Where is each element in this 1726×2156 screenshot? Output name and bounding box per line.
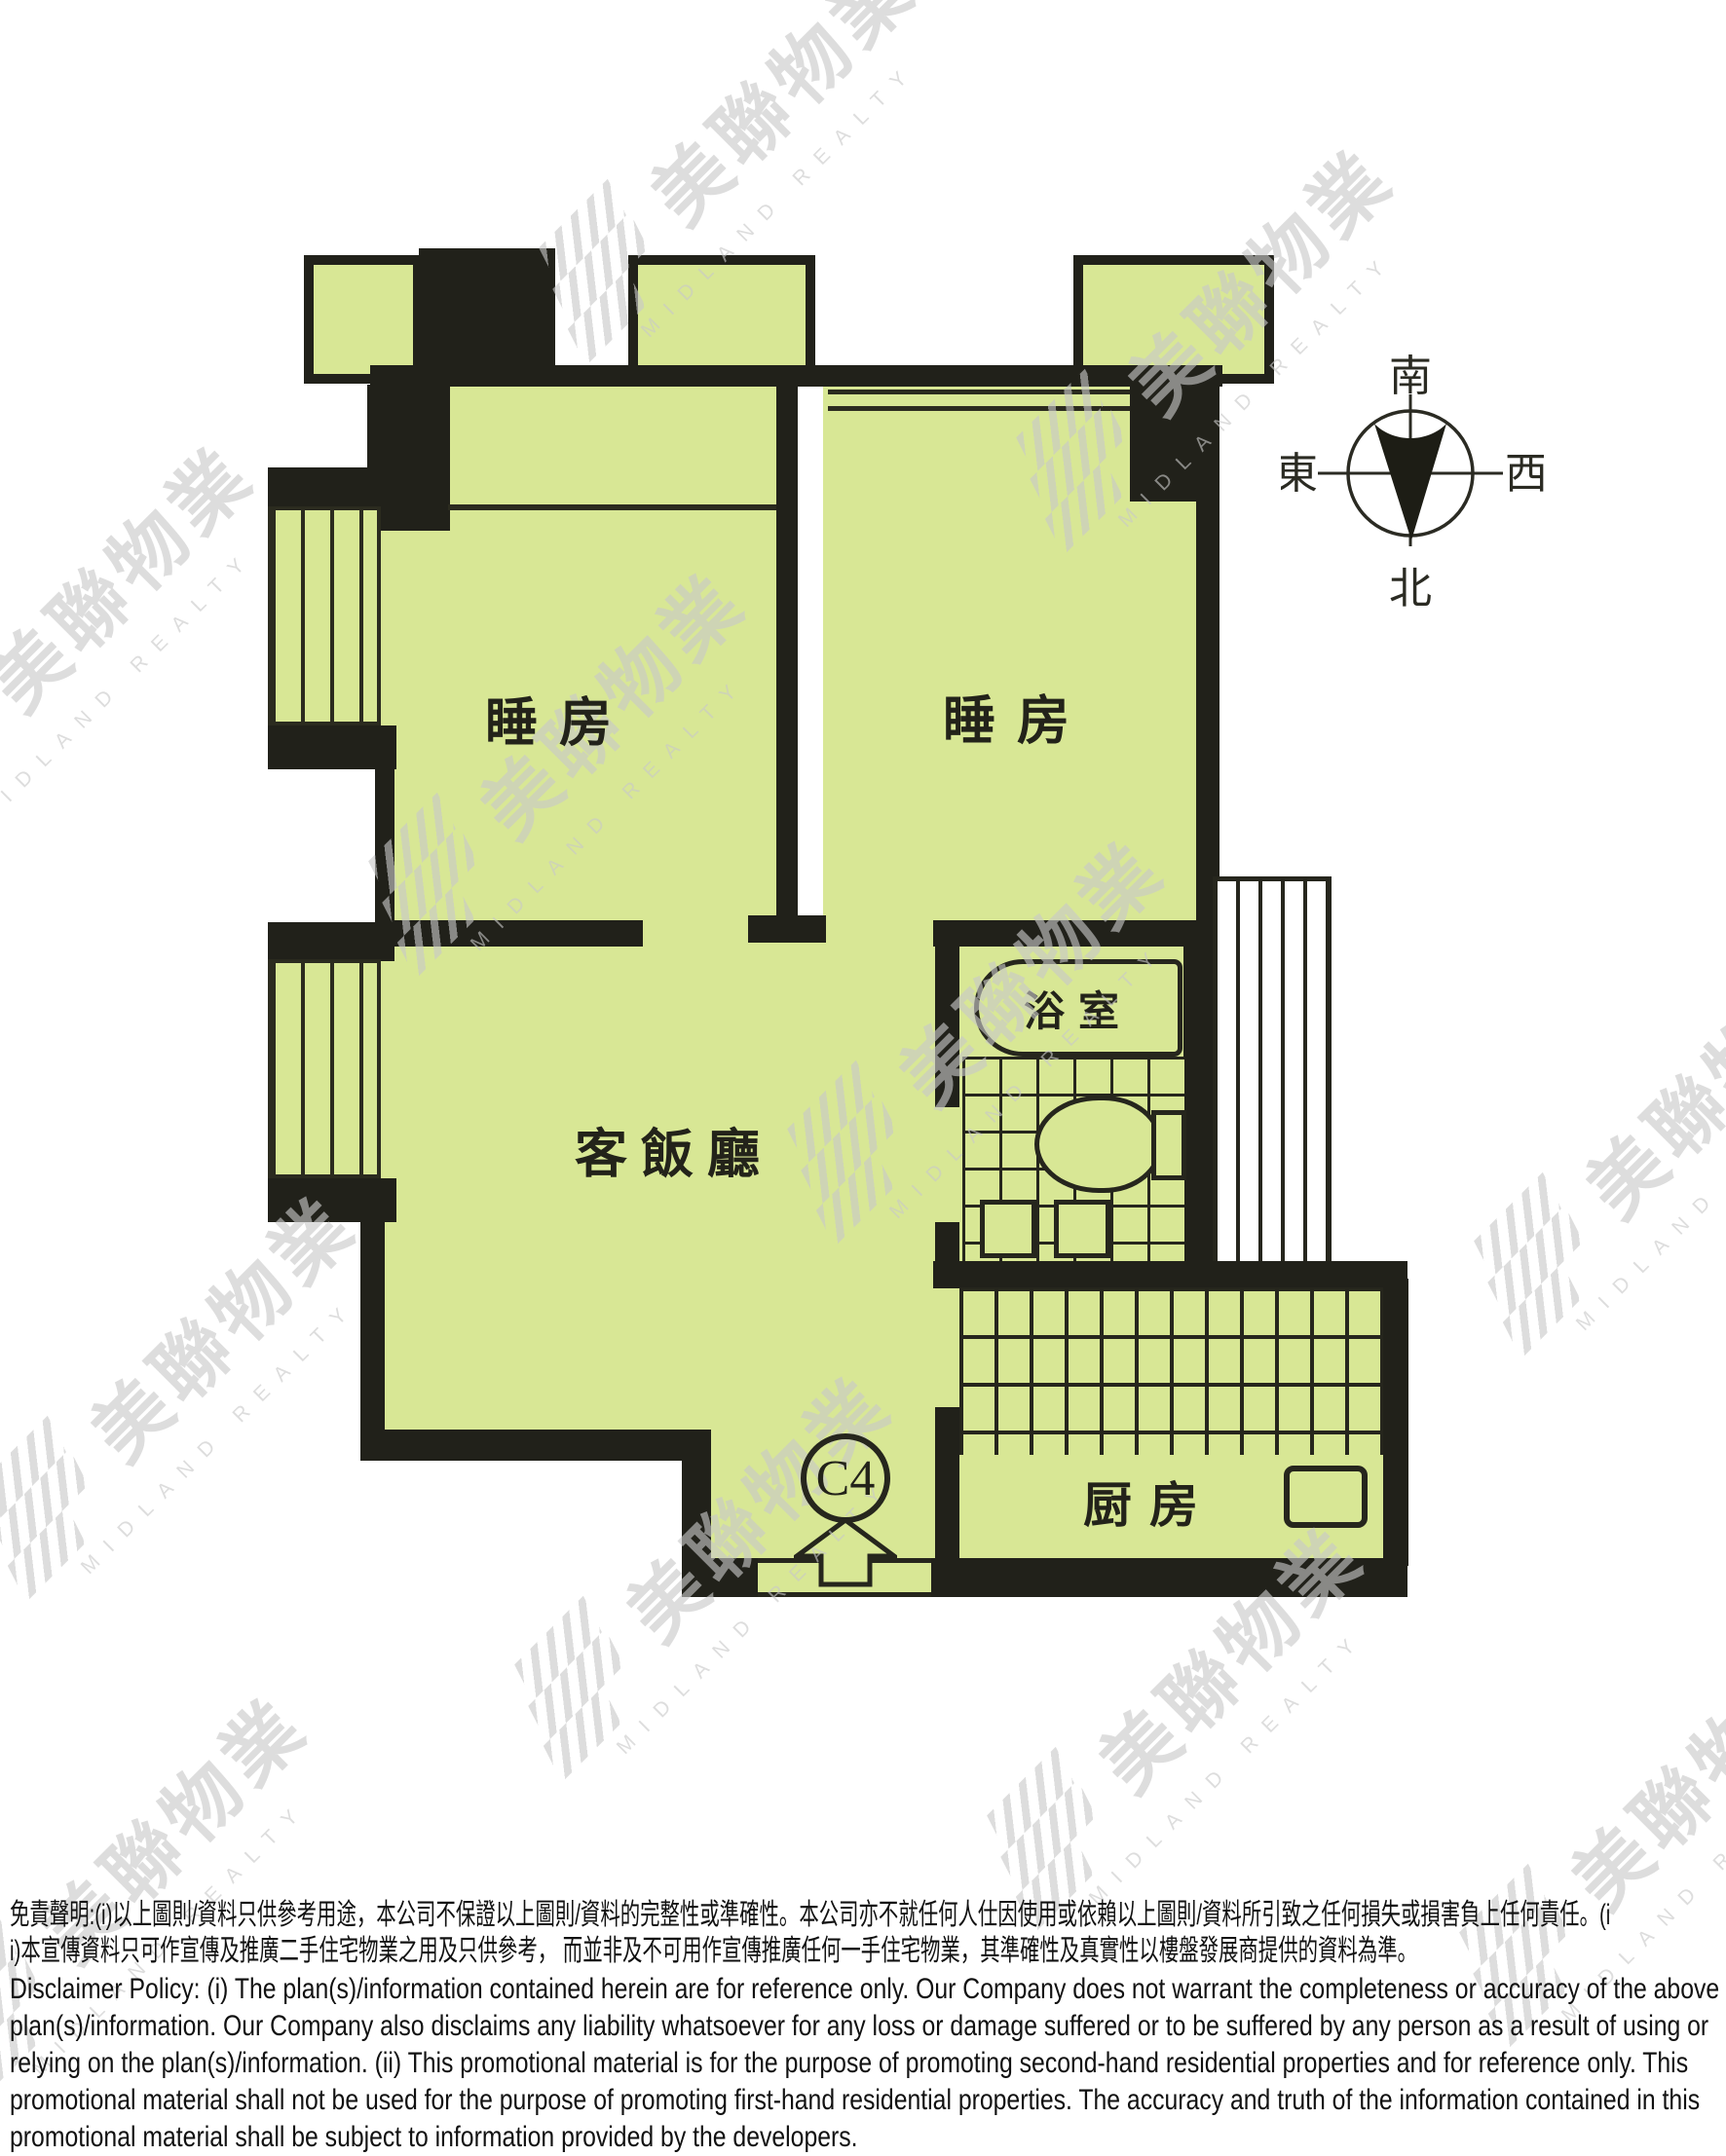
disclaimer: 免責聲明:(i)以上圖則/資料只供參考用途，本公司不保證以上圖則/資料的完整性或…: [10, 1897, 1720, 2156]
disclaimer-zh-line2: i)本宣傳資料只可作宣傳及推廣二手住宅物業之用及只供參考， 而並非及不可用作宣傳…: [10, 1933, 1718, 1969]
kitchen-label: 厨房: [1083, 1467, 1216, 1537]
labels-layer: 睡房 睡房 客飯廳 厨房 C4 免責聲明:(i)以上圖則/資料只供參考用途，本公…: [0, 0, 1726, 2124]
bedroom1-label: 睡房: [485, 680, 633, 757]
living-dining-label: 客飯廳: [575, 1111, 773, 1188]
disclaimer-en: Disclaimer Policy: (i) The plan(s)/infor…: [10, 1971, 1720, 2156]
disclaimer-zh-line1: 免責聲明:(i)以上圖則/資料只供參考用途，本公司不保證以上圖則/資料的完整性或…: [10, 1897, 1718, 1933]
bedroom2-label: 睡房: [943, 678, 1091, 755]
floor-plan-page: 浴室 南 北 東 西: [0, 0, 1726, 2124]
unit-label: C4: [801, 1433, 890, 1523]
